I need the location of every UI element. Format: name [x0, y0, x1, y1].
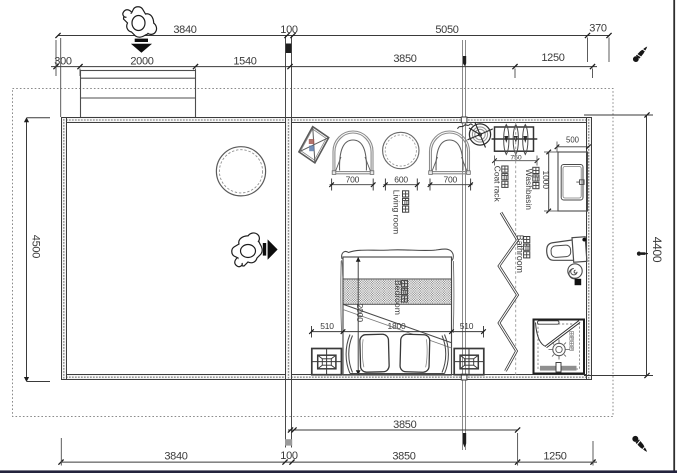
- svg-text:Coat rack: Coat rack: [493, 166, 503, 203]
- svg-text:500: 500: [566, 136, 580, 145]
- svg-text:300: 300: [54, 55, 72, 67]
- svg-text:510: 510: [320, 321, 334, 331]
- svg-text:370: 370: [589, 23, 607, 35]
- svg-text:1250: 1250: [541, 52, 564, 64]
- svg-text:4500: 4500: [30, 235, 42, 258]
- svg-text:510: 510: [460, 321, 474, 331]
- svg-text:600: 600: [394, 175, 408, 185]
- svg-text:700: 700: [346, 175, 360, 185]
- svg-text:1540: 1540: [233, 55, 256, 67]
- svg-text:3850: 3850: [393, 53, 416, 65]
- svg-text:Bedroom: Bedroom: [393, 280, 403, 315]
- svg-text:3840: 3840: [164, 451, 187, 463]
- svg-text:3850: 3850: [392, 451, 415, 463]
- svg-text:3840: 3840: [173, 24, 196, 36]
- svg-text:100: 100: [280, 24, 298, 36]
- svg-text:700: 700: [444, 175, 458, 185]
- svg-text:100: 100: [280, 450, 298, 462]
- svg-text:Living room: Living room: [392, 190, 402, 234]
- svg-text:4400: 4400: [650, 237, 664, 263]
- svg-text:2000: 2000: [130, 55, 153, 67]
- svg-text:Washbasin: Washbasin: [524, 169, 534, 210]
- svg-text:3850: 3850: [393, 419, 416, 431]
- svg-text:1250: 1250: [543, 451, 566, 463]
- svg-text:2000: 2000: [355, 304, 365, 323]
- svg-text:Bathroom: Bathroom: [515, 235, 525, 273]
- svg-text:1800: 1800: [387, 321, 406, 331]
- svg-text:1000: 1000: [541, 171, 551, 190]
- svg-text:5050: 5050: [435, 24, 458, 36]
